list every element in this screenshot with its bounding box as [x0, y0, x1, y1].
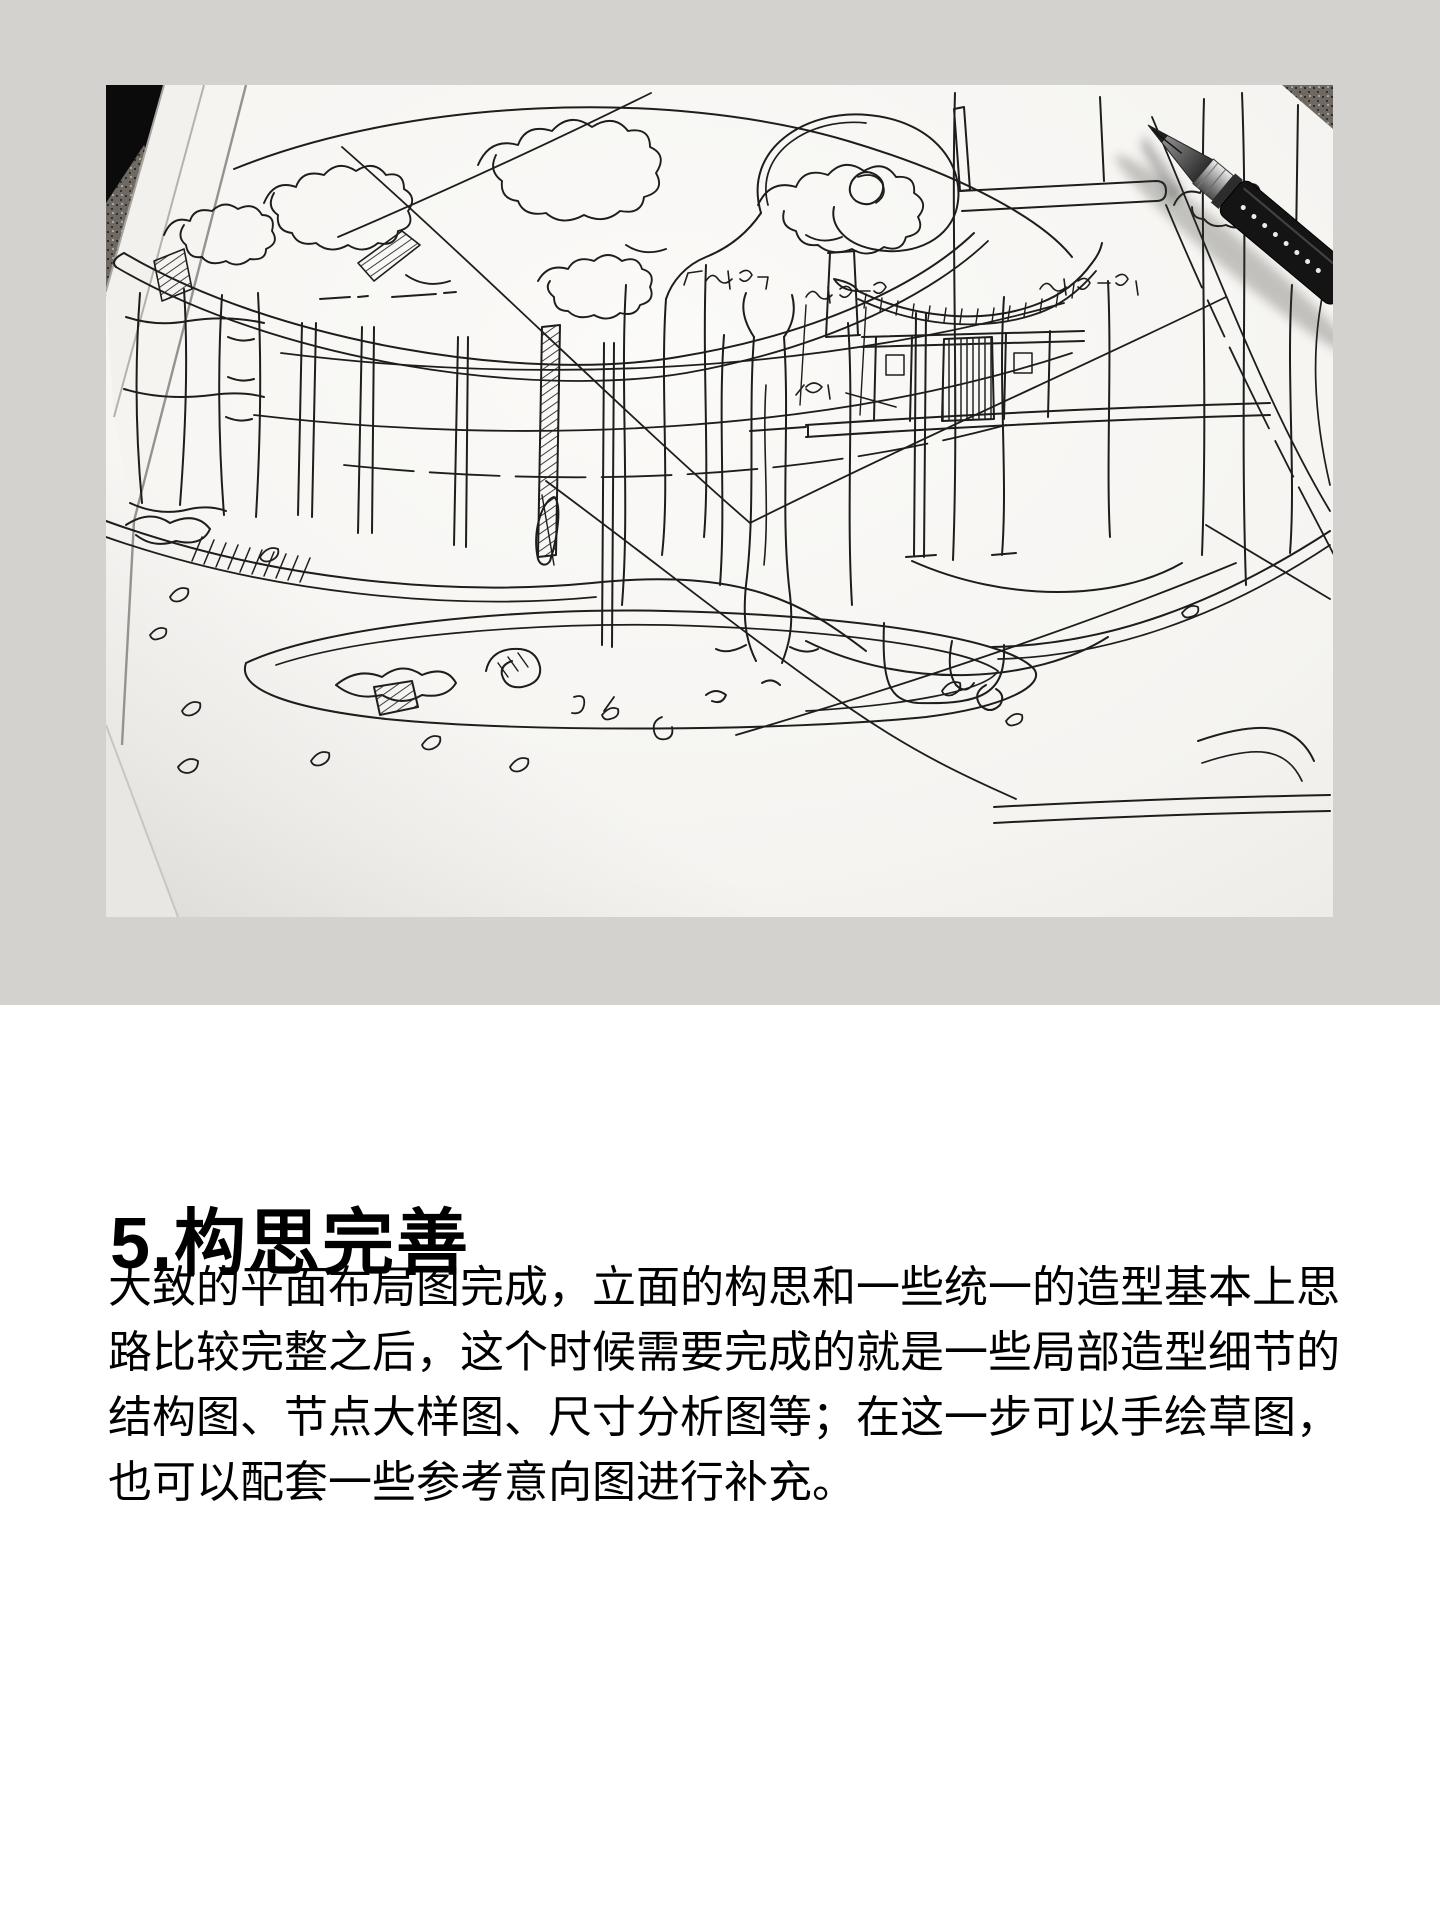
paragraph-line: 大致的平面布局图完成，立面的构思和一些统一的造型基本上思	[108, 1255, 1378, 1320]
sketch-photo-svg	[106, 85, 1333, 917]
article-section: 5.构思完善 大致的平面布局图完成，立面的构思和一些统一的造型基本上思 路比较完…	[0, 1005, 1440, 1920]
sketch-photo	[106, 85, 1333, 917]
hero-section	[0, 0, 1440, 1005]
body-paragraph: 大致的平面布局图完成，立面的构思和一些统一的造型基本上思 路比较完整之后，这个时…	[108, 1255, 1378, 1515]
paragraph-line: 结构图、节点大样图、尺寸分析图等；在这一步可以手绘草图，	[108, 1385, 1378, 1450]
paragraph-line: 也可以配套一些参考意向图进行补充。	[108, 1450, 1378, 1515]
paragraph-line: 路比较完整之后，这个时候需要完成的就是一些局部造型细节的	[108, 1320, 1378, 1385]
